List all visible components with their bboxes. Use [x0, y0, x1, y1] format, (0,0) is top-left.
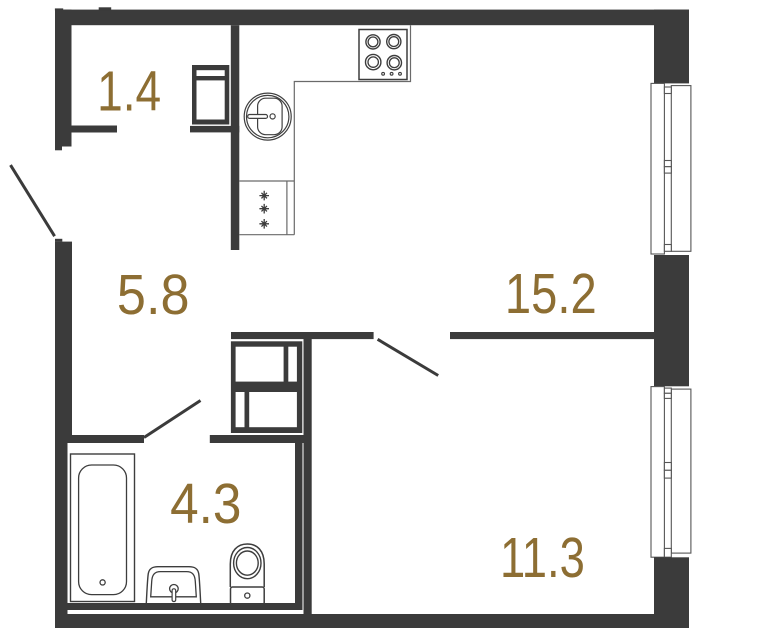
svg-text:15.2: 15.2: [505, 263, 597, 326]
svg-text:1.4: 1.4: [97, 59, 161, 123]
svg-text:11.3: 11.3: [500, 525, 585, 589]
svg-text:4.3: 4.3: [170, 473, 241, 536]
svg-text:5.8: 5.8: [117, 263, 190, 327]
